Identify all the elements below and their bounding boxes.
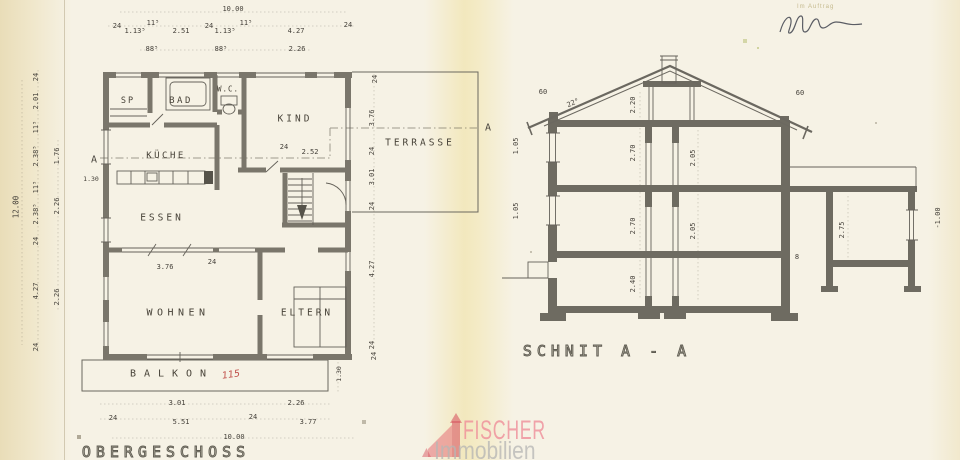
dim-s-garage: 2.75 [838,222,846,239]
dim-b1: 3.01 [169,399,186,407]
room-sp: SP [121,96,135,106]
dim-wohnen-2: 24 [208,258,216,266]
dim-b5: 24 [249,413,257,421]
dim-kind-2: 2.52 [302,148,319,156]
stamp-text: Im Auftrag [797,4,834,10]
dim-s-garage-level: -1.00 [934,207,942,228]
dim-b4: 5.51 [173,418,190,426]
watermark: FISCHER Immobilien [400,395,660,460]
dim-plan-width-bottom: 10.00 [223,433,244,441]
dim-rr5: 4.27 [368,261,376,278]
dim-l10: 1.76 [53,148,61,165]
dim-s-eg-door: 2.05 [689,223,697,240]
dim-r0: 24 [371,75,379,83]
dim-s-sill-1: 1.05 [512,138,520,155]
dim-t11: 88⁵ [215,45,228,53]
room-essen: ESSEN [140,213,184,224]
section-linework [502,56,921,321]
dim-b3: 24 [109,414,117,422]
dim-s-og: 2.70 [629,145,637,162]
dim-balkon-depth: 1.30 [335,366,343,382]
plan-title: OBERGESCHOSS [82,443,250,460]
dim-s-eg: 2.70 [629,218,637,235]
dim-l1: 24 [32,73,40,81]
dim-plan-width-top: 10.00 [222,5,243,13]
dim-wohnen-1: 3.76 [157,263,174,271]
dim-l3: 11⁵ [32,121,40,134]
room-eltern: ELTERN [281,308,333,319]
dim-s-og-door: 2.05 [689,150,697,167]
dim-t6: 1.13⁵ [214,27,235,35]
dim-l6: 2.38⁵ [32,203,40,224]
dim-rr4: 24 [368,202,376,210]
dim-kueche-entry: 1.30 [83,175,99,183]
dim-l8: 4.27 [32,283,40,300]
room-kueche: KÜCHE [146,151,186,161]
dim-l9: 24 [32,343,40,351]
room-wohnen: WOHNEN [146,308,209,319]
room-terrasse: TERRASSE [385,138,455,149]
dim-rr6: 24 [368,341,376,349]
blueprint-linework [0,0,960,460]
handwritten-signature [780,16,862,33]
dim-s-slab: 8 [795,253,799,261]
dim-plan-height-left: 12.00 [12,196,21,219]
dim-b6: 3.77 [300,418,317,426]
dim-balkon-24: 24 [370,352,378,360]
dim-t5: 24 [205,22,213,30]
dim-s-eave-right: 60 [796,89,804,97]
dim-t9: 24 [344,21,352,29]
watermark-subtitle: Immobilien [434,437,536,460]
scanned-blueprint-sheet: Im Auftrag FISCHER Immobilien SPBADW.C.K… [0,0,960,460]
dim-t2: 1.13⁵ [124,27,145,35]
section-marker-left: A [91,155,97,166]
dim-l2: 2.01 [32,93,40,110]
room-balkon: BALKON [130,369,214,380]
dim-t7: 11⁵ [240,19,253,27]
dim-s-kg: 2.40 [629,276,637,293]
dim-rr1: 3.76 [368,110,376,127]
room-kind: KIND [278,114,313,125]
dim-b2: 2.26 [288,399,305,407]
floor-plan-linework [22,12,478,438]
dim-l12: 2.26 [53,289,61,306]
dim-l4: 2.38⁵ [32,145,40,166]
dim-t8: 4.27 [288,27,305,35]
dim-rr2: 24 [368,147,376,155]
dim-t12: 2.26 [289,45,306,53]
dim-l7: 24 [32,237,40,245]
section-solids [540,81,921,321]
dim-l11: 2.26 [53,198,61,215]
dim-s-sill-2: 1.05 [512,203,520,220]
dim-t4: 2.51 [173,27,190,35]
dim-t10: 88⁵ [146,45,159,53]
dim-s-attic: 2.20 [629,97,637,114]
section-marker-right: A [485,123,491,134]
room-wc: W.C. [217,85,239,94]
dim-t3: 11⁵ [147,19,160,27]
dim-l5: 11⁵ [32,181,40,194]
room-bad: BAD [169,96,193,106]
dim-t1: 24 [113,22,121,30]
dim-s-eave-left: 60 [539,88,547,96]
dim-rr3: 3.01 [368,169,376,186]
section-title: SCHNIT A - A [523,342,691,360]
dim-kind-1: 24 [280,143,288,151]
